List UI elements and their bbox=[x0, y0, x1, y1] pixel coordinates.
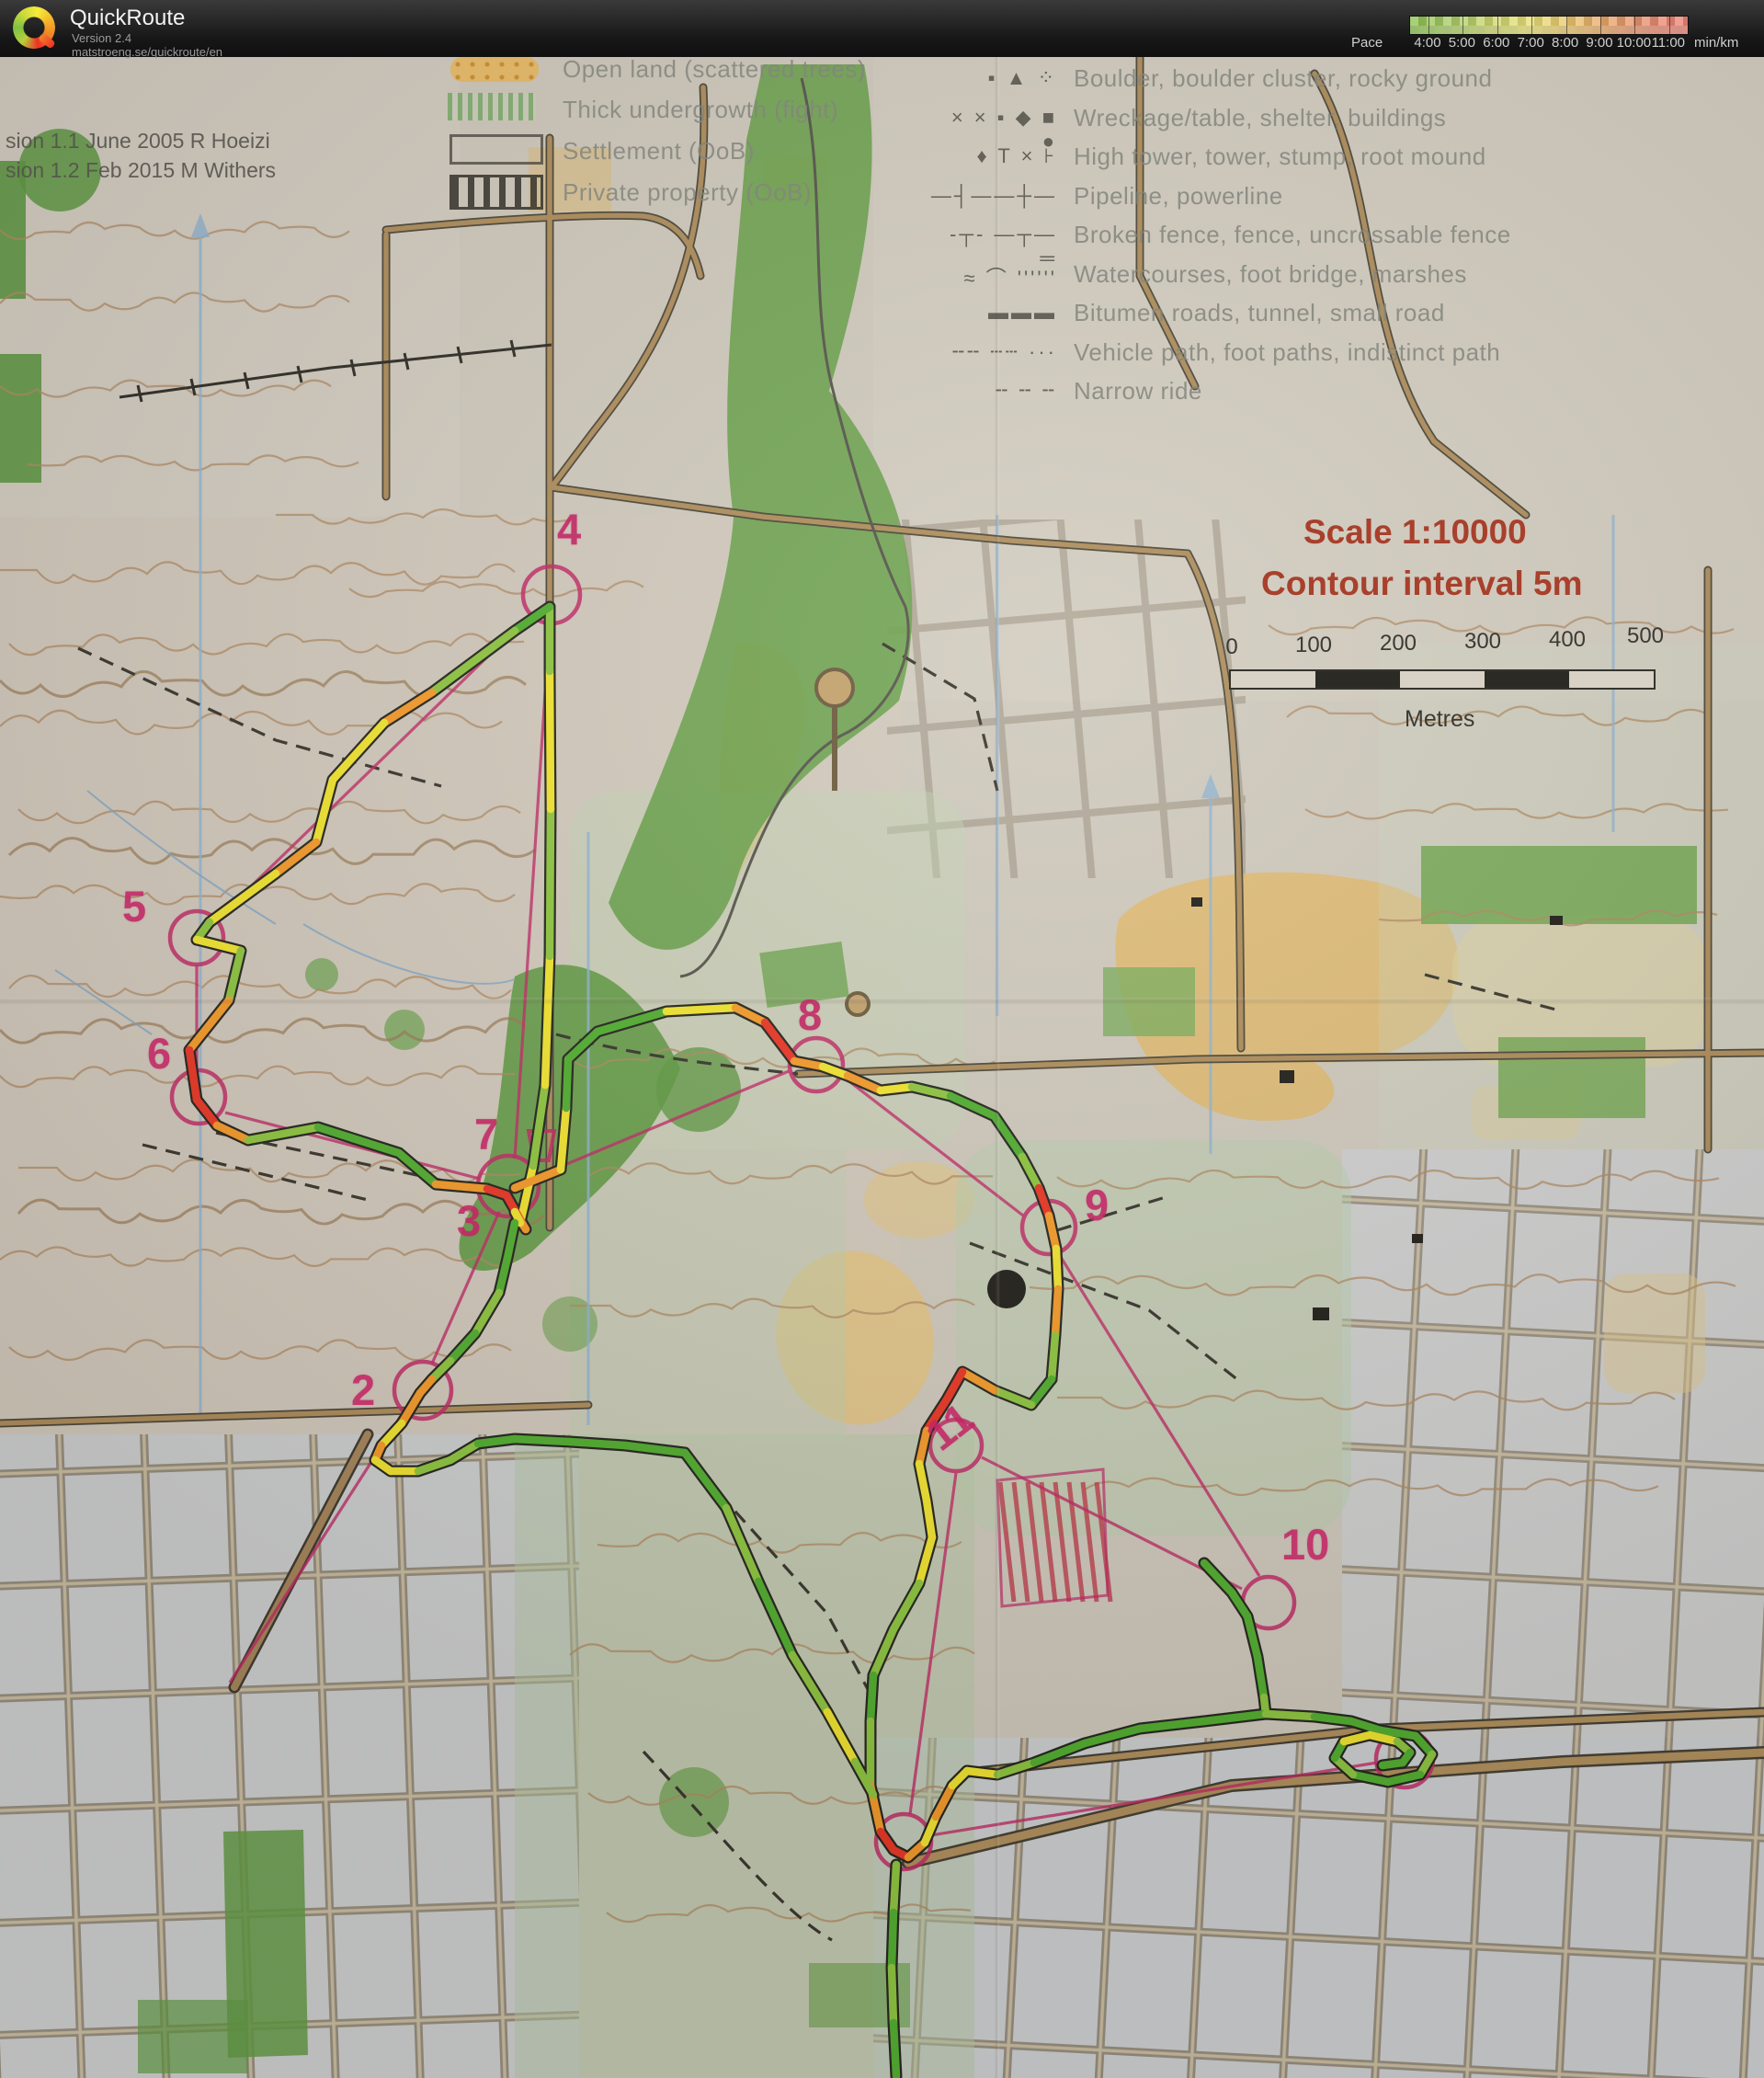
legend-open-land: Open land (scattered trees) bbox=[563, 55, 866, 84]
pace-tick-label: 8:00 bbox=[1552, 35, 1578, 51]
map-revision-line-2: sion 1.2 Feb 2015 M Withers bbox=[6, 158, 276, 183]
scale-tick-200: 200 bbox=[1380, 631, 1417, 657]
app-url[interactable]: matstroeng.se/quickroute/en bbox=[72, 45, 222, 59]
thick-undergrowth-swatch-icon bbox=[448, 93, 536, 120]
control-label-6: 6 bbox=[147, 1028, 171, 1079]
pace-tick-label: 7:00 bbox=[1518, 35, 1544, 51]
pace-tick-label: 4:00 bbox=[1414, 35, 1440, 51]
pace-unit-label: min/km bbox=[1694, 35, 1738, 51]
legend-right-item: High tower, tower, stump, root mound bbox=[1074, 143, 1486, 171]
open-land-swatch-icon bbox=[450, 57, 539, 82]
control-label-3: 3 bbox=[457, 1195, 481, 1246]
legend-right-item: Wreckage/table, shelter, buildings bbox=[1074, 104, 1446, 132]
pace-tick-label: 10:00 bbox=[1617, 35, 1652, 51]
scale-title: Scale 1:10000 bbox=[1303, 513, 1527, 552]
pace-tick-line bbox=[1600, 17, 1601, 34]
legend-thick-undergrowth: Thick undergrowth (fight) bbox=[563, 96, 838, 124]
control-label-5: 5 bbox=[122, 881, 146, 931]
settlement-swatch-icon bbox=[450, 134, 543, 165]
control-label-4: 4 bbox=[557, 504, 581, 554]
pace-tick-label: 6:00 bbox=[1483, 35, 1509, 51]
legend-right-item: Narrow ride bbox=[1074, 377, 1202, 405]
legend-symbol-icon: —┤——┼— bbox=[928, 184, 1057, 208]
scale-tick-400: 400 bbox=[1549, 627, 1586, 653]
pace-legend-label: Pace bbox=[1351, 35, 1383, 51]
pace-tick-label: 5:00 bbox=[1449, 35, 1475, 51]
scale-tick-500: 500 bbox=[1627, 623, 1664, 649]
control-label-2: 2 bbox=[351, 1364, 375, 1415]
legend-symbol-icon: ╌╌ ┄┄ ··· bbox=[928, 340, 1057, 364]
pace-gradient-bar bbox=[1409, 16, 1689, 35]
legend-right-item: Bitumen roads, tunnel, small road bbox=[1074, 299, 1445, 327]
control-label-9: 9 bbox=[1085, 1180, 1109, 1230]
legend-settlement: Settlement (OoB) bbox=[563, 137, 755, 166]
map-revision-line-1: sion 1.1 June 2005 R Hoeizi bbox=[6, 129, 270, 154]
pace-tick-line bbox=[1566, 17, 1567, 34]
pace-tick-line bbox=[1497, 17, 1498, 34]
control-label-7: 7 bbox=[474, 1109, 498, 1159]
contour-interval-title: Contour interval 5m bbox=[1261, 565, 1583, 603]
scale-tick-0: 0 bbox=[1225, 634, 1237, 660]
legend-right-item: Boulder, boulder cluster, rocky ground bbox=[1074, 64, 1492, 93]
app-version: Version 2.4 bbox=[72, 31, 131, 45]
scale-bar bbox=[1229, 669, 1656, 690]
legend-symbol-icon: ≈ ⌒ '''''' bbox=[928, 262, 1057, 291]
pace-tick-line bbox=[1634, 17, 1635, 34]
pace-checker-overlay2 bbox=[1410, 26, 1688, 35]
scale-tick-300: 300 bbox=[1464, 629, 1501, 655]
legend-symbol-icon: ╌ ╌ ╌ bbox=[928, 379, 1057, 403]
legend-right-item: Watercourses, foot bridge, marshes bbox=[1074, 260, 1467, 289]
pace-tick-label: 9:00 bbox=[1586, 35, 1612, 51]
titlebar: QuickRoute Version 2.4 matstroeng.se/qui… bbox=[0, 0, 1764, 57]
private-property-swatch-icon bbox=[450, 175, 543, 210]
legend-right-item: Broken fence, fence, uncrossable fence bbox=[1074, 221, 1511, 249]
control-label-8: 8 bbox=[798, 989, 822, 1040]
pace-tick-line bbox=[1428, 17, 1429, 34]
pace-tick-line bbox=[1462, 17, 1463, 34]
legend-symbol-icon: ▪ ▲ ⁘ bbox=[928, 66, 1057, 90]
pace-tick-label: 11:00 bbox=[1652, 35, 1685, 51]
legend-right-item: Pipeline, powerline bbox=[1074, 182, 1283, 211]
app-title: QuickRoute bbox=[70, 6, 185, 31]
legend-symbol-icon: ▬▬▬ bbox=[928, 301, 1057, 325]
legend-symbol-icon: ♦ T × ⊦ bbox=[928, 144, 1057, 168]
scale-unit: Metres bbox=[1405, 706, 1474, 733]
legend-private-property: Private property (OoB) bbox=[563, 178, 812, 207]
scale-tick-100: 100 bbox=[1295, 633, 1332, 658]
pace-tick-line bbox=[1531, 17, 1532, 34]
control-label-10: 10 bbox=[1281, 1519, 1329, 1570]
legend-right-item: Vehicle path, foot paths, indistinct pat… bbox=[1074, 338, 1500, 367]
pace-tick-line bbox=[1669, 17, 1670, 34]
